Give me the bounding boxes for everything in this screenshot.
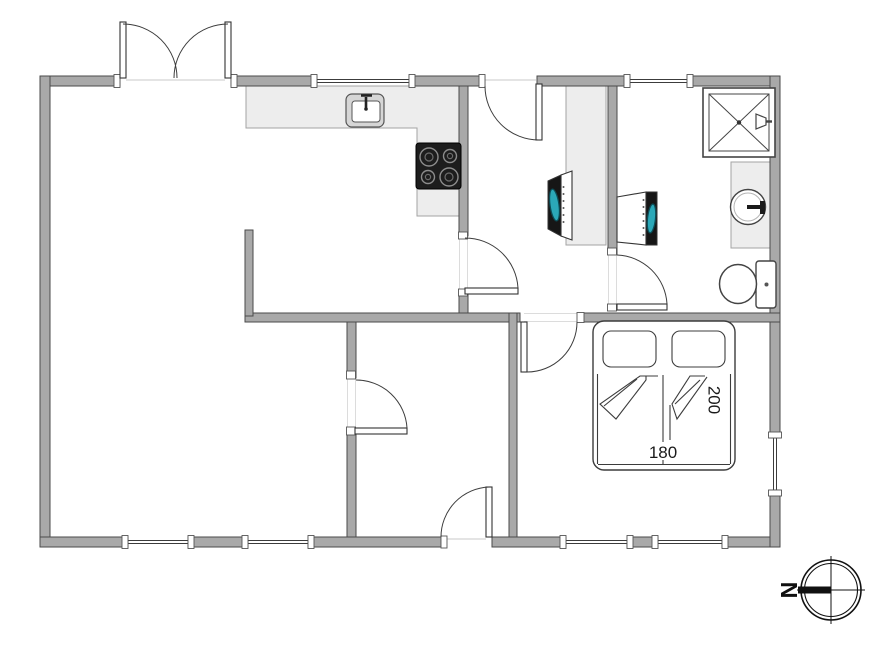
toilet-icon: [720, 261, 777, 308]
bathroom: [617, 88, 776, 308]
bed-length-label: 200: [705, 386, 724, 414]
double-bed-icon: 180 200: [593, 321, 735, 470]
double-door-icon: [114, 22, 237, 88]
hall-entry-door: [479, 75, 542, 141]
window-bedroom-1: [560, 536, 633, 549]
stove-icon: [416, 143, 461, 189]
bed-width-label: 180: [649, 443, 677, 462]
window-living-2: [242, 536, 314, 549]
window-bedroom-east: [769, 432, 782, 496]
tv-icon: [548, 171, 572, 240]
compass-north-label: N: [776, 582, 802, 599]
window-bathroom: [624, 75, 693, 88]
opening-guides: [126, 80, 617, 539]
shower-icon: [703, 88, 775, 157]
exterior-walls: [40, 76, 780, 547]
window-living-1: [122, 536, 194, 549]
window-bedroom-2: [652, 536, 728, 549]
washbasin-icon: [731, 190, 766, 225]
sink-icon: [346, 94, 384, 127]
washing-machine-icon: [617, 192, 657, 245]
floor-plan: 180 200 N: [0, 0, 888, 646]
compass-rose-icon: N: [776, 556, 865, 624]
